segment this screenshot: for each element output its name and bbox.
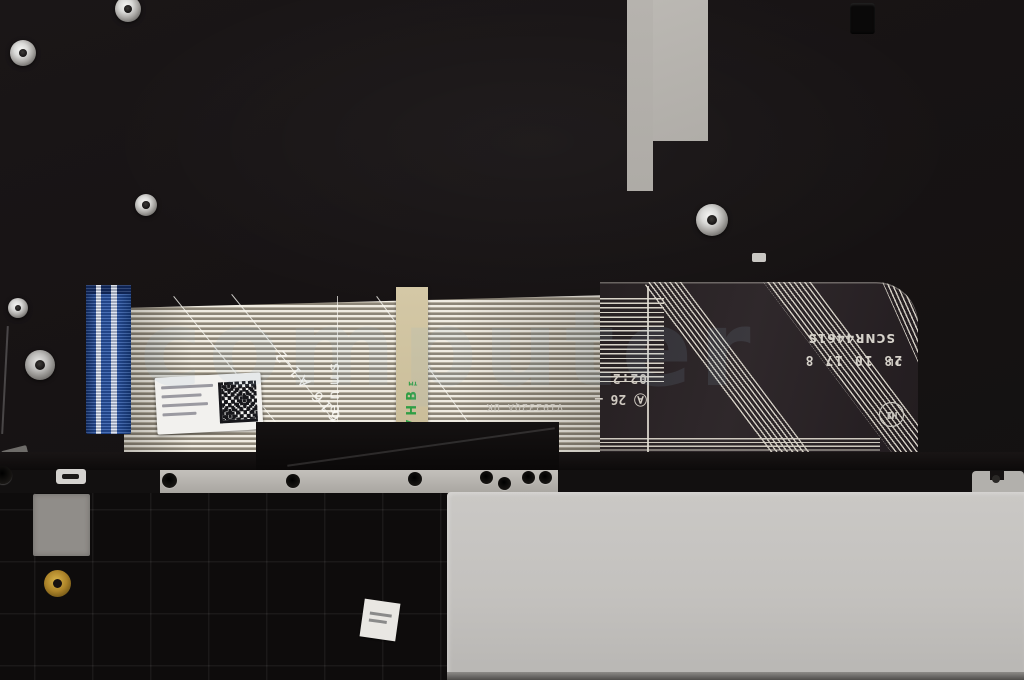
service-sticker: [360, 599, 401, 642]
trace-divider-line: [647, 286, 649, 468]
label-microtext-line: [162, 393, 202, 398]
foam-pad: [33, 494, 90, 556]
membrane-serial-text: SCNR4461S: [787, 331, 895, 345]
sticker-microtext-line: [369, 618, 387, 623]
chassis-corner-notch: [850, 3, 875, 34]
foil-tape-patch: [653, 0, 708, 141]
screw-boss: [135, 194, 157, 216]
latch-slot: [62, 474, 79, 479]
cable-white-stripe: [96, 285, 101, 434]
foil-tape-strip: [627, 0, 653, 191]
ribbon-cable-connector: [86, 285, 131, 434]
touchpad-bottom-edge: [447, 672, 1024, 680]
screw-boss: [10, 40, 36, 66]
washer-screw: [25, 350, 55, 380]
cable-white-stripe: [111, 285, 117, 434]
screw-hole: [286, 474, 300, 488]
label-microtext-line: [161, 384, 213, 390]
screw-hole: [162, 473, 177, 488]
vhb-adhesive-tape: VHB™: [396, 287, 428, 430]
tab-hole: [992, 475, 1000, 483]
bracket-edge-highlight: [287, 427, 555, 466]
black-bracket: [256, 422, 559, 472]
screw-boss: [696, 204, 728, 236]
membrane-date-stamp: JL 28 10 17 8: [752, 352, 902, 367]
certification-marks: H1 O: [838, 400, 904, 430]
cert-mark-o: O: [879, 403, 904, 428]
screw-boss: [8, 298, 28, 318]
screw-hole: [480, 471, 493, 484]
label-microtext-line: [162, 402, 208, 407]
dotmatrix-stamp-row2: Ⓐ 26 —: [563, 391, 647, 410]
photo-laptop-palmrest-internal: VHB™ SCNR4461S JL 28 10 17 8 V19232QA UK…: [0, 0, 1024, 680]
vhb-tape-text: VHB™: [405, 364, 420, 430]
latch-tab: [56, 469, 86, 484]
label-microtext-line: [162, 412, 196, 417]
screw-hole: [522, 471, 535, 484]
date-stamp-prefix: JL: [886, 356, 902, 367]
metal-clip: [752, 253, 766, 262]
screw-hole: [408, 472, 422, 486]
barcode-label: [155, 372, 264, 434]
membrane-model-text: V19232QA UK: [447, 401, 563, 412]
datamatrix-barcode: [218, 381, 258, 424]
membrane-codename-mark: venus: [325, 306, 343, 428]
gold-standoff: [44, 570, 71, 597]
screw-hole: [498, 477, 511, 490]
cable-stiffener-cap: [86, 285, 131, 294]
sticker-microtext-line: [370, 612, 392, 618]
screw-hole: [539, 471, 552, 484]
dotmatrix-stamp-row1: 02:2: [595, 370, 647, 385]
membrane-dark-tail: [600, 282, 918, 472]
touchpad-plate: [447, 492, 1024, 680]
